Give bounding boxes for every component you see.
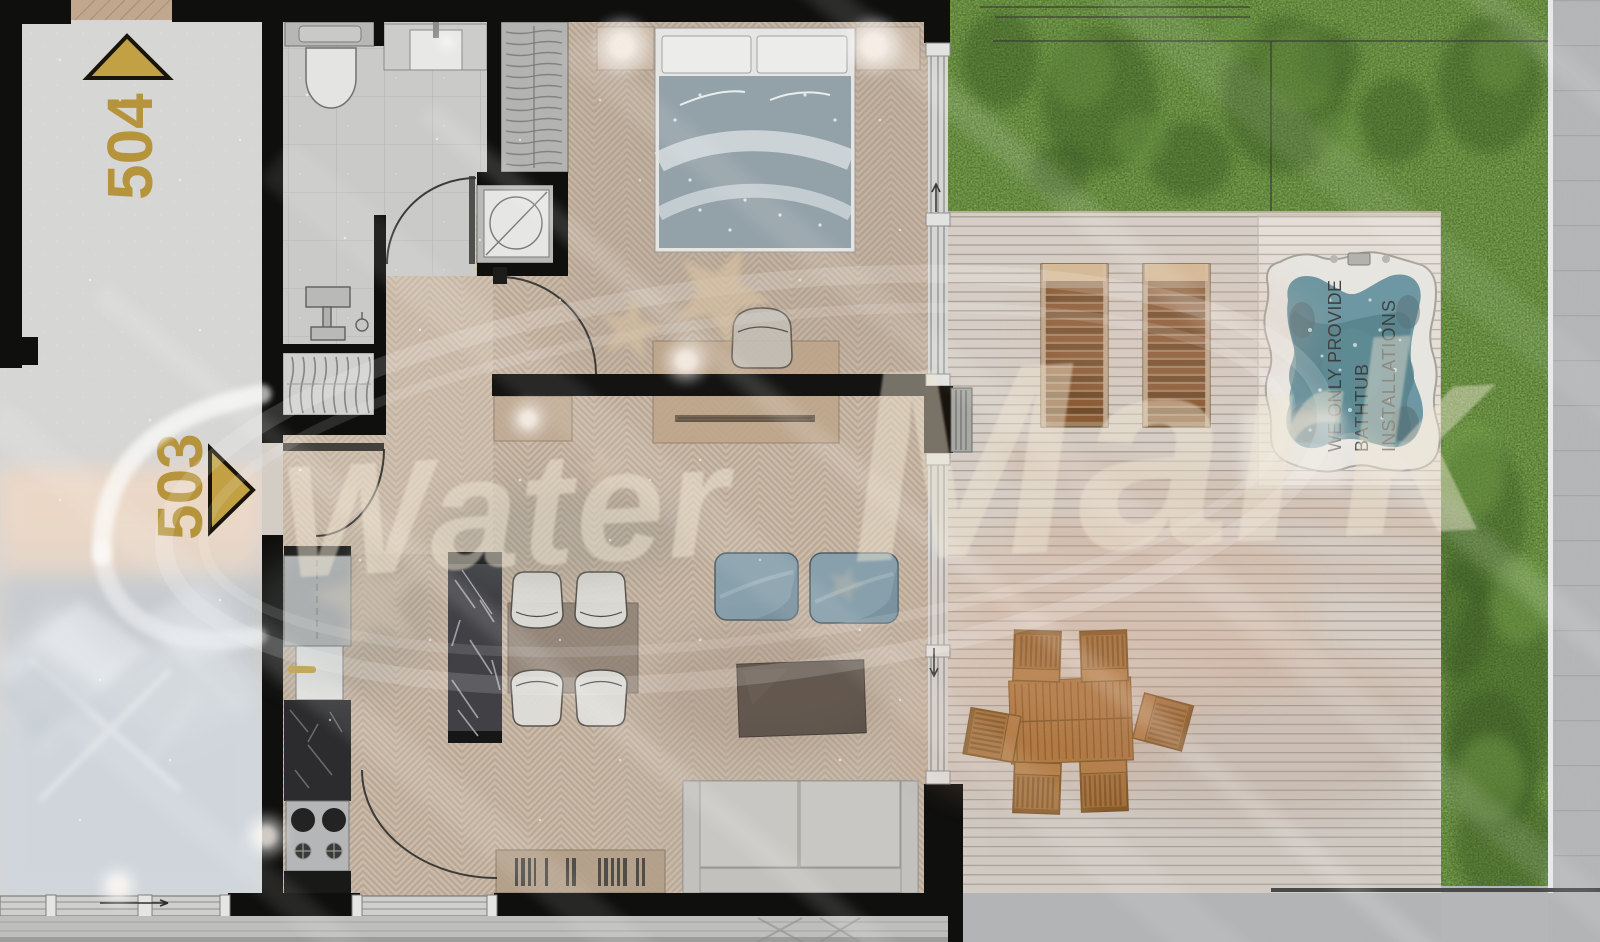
svg-text:504: 504: [94, 93, 166, 200]
svg-text:Mark: Mark: [839, 282, 1509, 620]
svg-text:Water: Water: [274, 409, 740, 612]
